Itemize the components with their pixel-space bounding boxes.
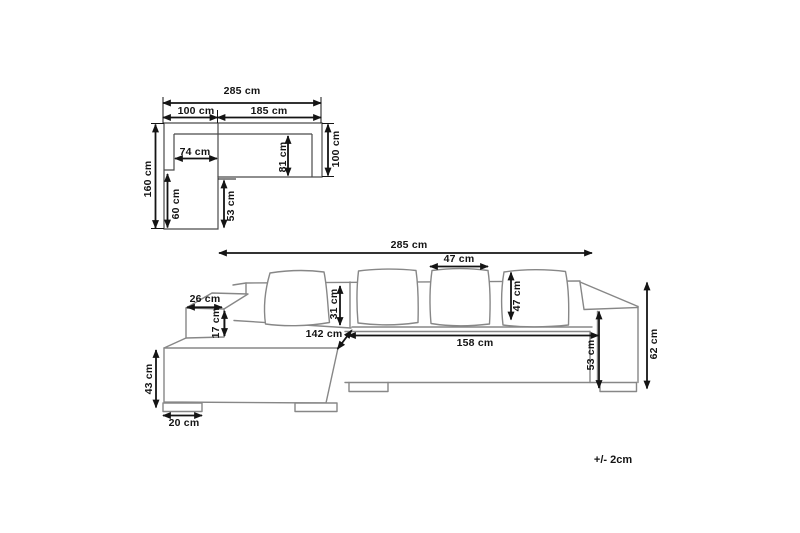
right-armrest-top-slant <box>580 282 638 307</box>
dim-label-plan-right-width: 185 cm <box>251 105 288 117</box>
dim-label-front-overall-width: 285 cm <box>391 239 428 251</box>
diagram-linework <box>0 0 800 533</box>
chaise-front-face <box>164 348 338 403</box>
dim-label-plan-right-depth: 100 cm <box>330 131 342 168</box>
dim-label-plan-left-depth: 160 cm <box>142 161 154 198</box>
cushion-3 <box>430 269 490 326</box>
dim-label-plan-chaise-width: 74 cm <box>180 146 211 158</box>
dim-label-plan-front-offset: 53 cm <box>225 191 237 222</box>
dim-label-seat-front-width: 158 cm <box>457 337 494 349</box>
dim-label-backrest-height: 31 cm <box>328 289 340 320</box>
dim-label-armrest-height: 53 cm <box>585 340 597 371</box>
plan-left-armrest-line <box>164 134 174 170</box>
back-cushions <box>264 269 568 327</box>
dim-label-armrest-above-seat: 17 cm <box>210 308 222 339</box>
dim-label-plan-chaise-length: 60 cm <box>170 189 182 220</box>
cushion-1 <box>264 271 329 326</box>
dim-label-cushion-height: 47 cm <box>511 281 523 312</box>
dim-label-foot-width: 20 cm <box>169 417 200 429</box>
dim-label-armrest-depth: 26 cm <box>190 293 221 305</box>
top-view-plan <box>164 123 322 229</box>
dim-label-plan-overall-width: 285 cm <box>224 85 261 97</box>
dim-label-seat-height: 43 cm <box>143 364 155 395</box>
plan-outline <box>164 123 322 229</box>
tolerance-note: +/- 2cm <box>594 454 632 466</box>
sofa-dimension-diagram: 285 cm 100 cm 185 cm 74 cm 160 cm 60 cm … <box>0 0 800 533</box>
dim-label-plan-left-width: 100 cm <box>178 105 215 117</box>
right-armrest-base <box>600 383 637 392</box>
cushion-2 <box>357 269 418 325</box>
chaise-foot-right <box>295 403 337 412</box>
dim-label-chaise-length: 142 cm <box>306 328 343 340</box>
front-view-sofa <box>163 269 638 412</box>
seat-foot <box>349 383 388 392</box>
dim-label-total-height: 62 cm <box>648 329 660 360</box>
chaise-foot-left <box>163 403 202 412</box>
dim-label-plan-seat-depth: 81 cm <box>277 142 289 173</box>
dim-label-cushion-width: 47 cm <box>444 253 475 265</box>
